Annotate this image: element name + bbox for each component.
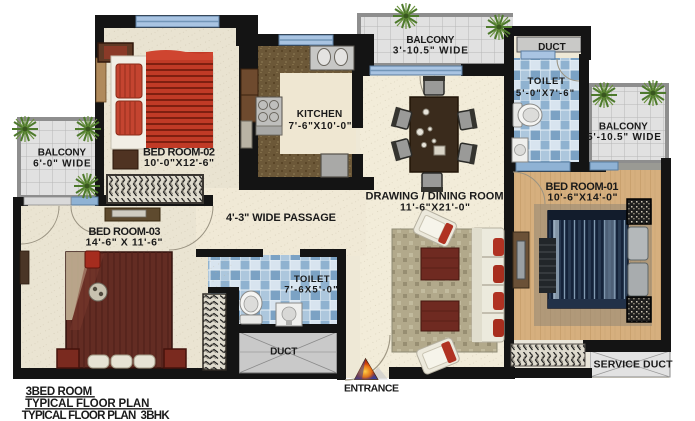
svg-text:TOILET: TOILET <box>527 76 565 87</box>
svg-text:ENTRANCE: ENTRANCE <box>344 383 399 395</box>
svg-text:4'-3" WIDE PASSAGE: 4'-3" WIDE PASSAGE <box>226 212 336 224</box>
svg-text:5'-0"X7'-6": 5'-0"X7'-6" <box>516 88 574 99</box>
svg-text:5'-10.5" WIDE: 5'-10.5" WIDE <box>587 132 661 143</box>
svg-text:3BED ROOM: 3BED ROOM <box>26 386 93 398</box>
svg-text:6'-0" WIDE: 6'-0" WIDE <box>33 158 91 169</box>
svg-text:11'-6"X21'-0": 11'-6"X21'-0" <box>400 201 470 213</box>
svg-text:7'-6"X10'-0": 7'-6"X10'-0" <box>289 121 352 132</box>
svg-text:14'-6" X 11'-6": 14'-6" X 11'-6" <box>86 237 163 249</box>
svg-text:7'-6X5'-0": 7'-6X5'-0" <box>284 284 337 295</box>
svg-text:10'-6"X14'-0": 10'-6"X14'-0" <box>548 191 618 203</box>
svg-text:SERVICE DUCT: SERVICE DUCT <box>594 358 674 370</box>
svg-text:KITCHEN: KITCHEN <box>297 109 343 120</box>
svg-text:BALCONY: BALCONY <box>599 121 648 132</box>
svg-text:DUCT: DUCT <box>538 42 566 53</box>
svg-text:10'-0"X12'-6": 10'-0"X12'-6" <box>144 157 214 169</box>
svg-text:DUCT: DUCT <box>270 347 297 358</box>
svg-text:TYPICAL FLOOR PLAN 3BHK: TYPICAL FLOOR PLAN 3BHK <box>22 410 171 421</box>
svg-text:BALCONY: BALCONY <box>38 148 87 159</box>
svg-text:3'-10.5" WIDE: 3'-10.5" WIDE <box>393 46 468 57</box>
svg-text:BALCONY: BALCONY <box>406 35 454 46</box>
